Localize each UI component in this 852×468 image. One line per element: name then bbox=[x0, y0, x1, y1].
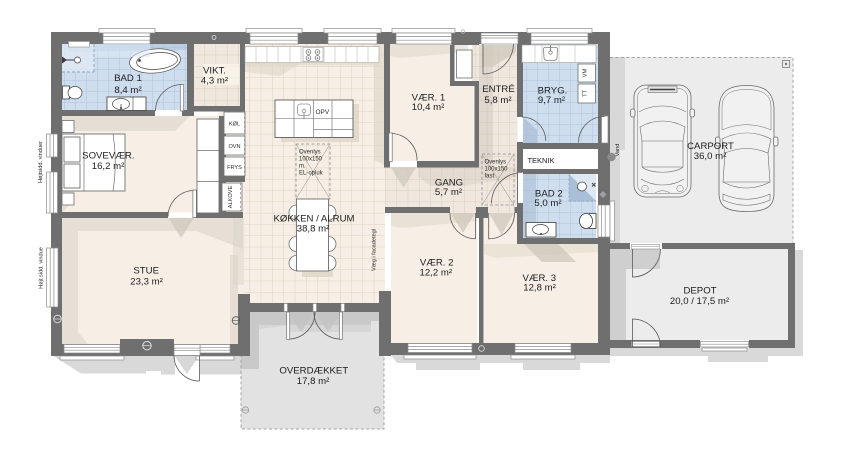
svg-text:100x150: 100x150 bbox=[485, 167, 509, 173]
svg-text:Højtsidd. vinduer: Højtsidd. vinduer bbox=[38, 141, 44, 183]
svg-text:ENTRÉ: ENTRÉ bbox=[482, 84, 515, 95]
svg-text:Højt sidd. vindue: Højt sidd. vindue bbox=[39, 247, 45, 289]
svg-text:12,8 m²: 12,8 m² bbox=[523, 283, 556, 294]
svg-text:BAD 1: BAD 1 bbox=[114, 73, 142, 84]
svg-text:4,3 m²: 4,3 m² bbox=[201, 76, 229, 87]
svg-text:OVN: OVN bbox=[228, 144, 240, 150]
svg-text:Væg i facadetegl: Væg i facadetegl bbox=[372, 229, 378, 271]
svg-text:ALKOVE: ALKOVE bbox=[228, 186, 234, 209]
svg-text:16,2 m²: 16,2 m² bbox=[92, 161, 125, 172]
svg-text:23,3 m²: 23,3 m² bbox=[130, 276, 163, 287]
svg-text:9,7 m²: 9,7 m² bbox=[538, 95, 566, 106]
svg-text:VM: VM bbox=[583, 68, 589, 77]
svg-text:5,7 m²: 5,7 m² bbox=[435, 187, 463, 198]
svg-text:DEPOT: DEPOT bbox=[683, 286, 716, 297]
svg-text:20,0 / 17,5 m²: 20,0 / 17,5 m² bbox=[670, 296, 730, 307]
svg-text:OVERDÆKKET: OVERDÆKKET bbox=[279, 366, 348, 377]
svg-text:36,0 m²: 36,0 m² bbox=[694, 151, 727, 162]
svg-text:STUE: STUE bbox=[133, 266, 159, 277]
svg-text:5,8 m²: 5,8 m² bbox=[484, 95, 512, 106]
svg-text:38,8 m²: 38,8 m² bbox=[297, 224, 330, 235]
svg-text:Ovenlys: Ovenlys bbox=[485, 160, 507, 166]
svg-text:FRYS: FRYS bbox=[227, 165, 242, 171]
svg-text:10,4 m²: 10,4 m² bbox=[412, 102, 445, 113]
svg-text:TEKNIK: TEKNIK bbox=[527, 156, 554, 165]
svg-text:12,2 m²: 12,2 m² bbox=[420, 268, 453, 279]
svg-text:Vand: Vand bbox=[615, 144, 621, 157]
svg-text:KØL: KØL bbox=[229, 122, 240, 128]
svg-text:EL-opluk: EL-opluk bbox=[299, 171, 324, 177]
svg-text:Ovenlys: Ovenlys bbox=[299, 150, 321, 156]
svg-text:m.: m. bbox=[299, 164, 306, 170]
svg-text:17,8 m²: 17,8 m² bbox=[297, 376, 330, 387]
svg-text:100x150: 100x150 bbox=[299, 157, 323, 163]
svg-text:fast: fast bbox=[485, 174, 495, 180]
svg-text:5,0 m²: 5,0 m² bbox=[534, 198, 562, 209]
svg-text:OPV: OPV bbox=[316, 109, 330, 116]
svg-text:TT: TT bbox=[583, 90, 589, 97]
svg-text:8,4 m²: 8,4 m² bbox=[114, 85, 142, 96]
svg-text:SOVEVÆR.: SOVEVÆR. bbox=[82, 151, 134, 162]
